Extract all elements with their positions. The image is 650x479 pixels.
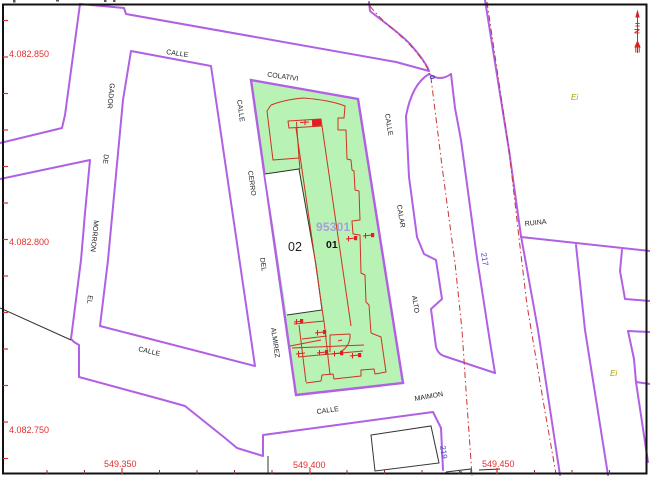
svg-text:4.082.800: 4.082.800 <box>9 237 49 247</box>
svg-text:N: N <box>632 29 641 34</box>
svg-text:95301: 95301 <box>316 220 350 234</box>
svg-text:DE: DE <box>101 154 109 165</box>
svg-text:Ei: Ei <box>610 369 617 378</box>
svg-text:4.082.850: 4.082.850 <box>9 49 49 59</box>
svg-text:01: 01 <box>326 239 338 251</box>
svg-text:4.082.750: 4.082.750 <box>9 425 49 435</box>
svg-text:549.350: 549.350 <box>104 459 137 469</box>
svg-text:549.400: 549.400 <box>293 460 326 470</box>
svg-text:549.450: 549.450 <box>482 459 515 469</box>
svg-text:Ei: Ei <box>571 93 578 102</box>
svg-text:02: 02 <box>288 240 302 254</box>
svg-text:EL: EL <box>85 295 93 304</box>
